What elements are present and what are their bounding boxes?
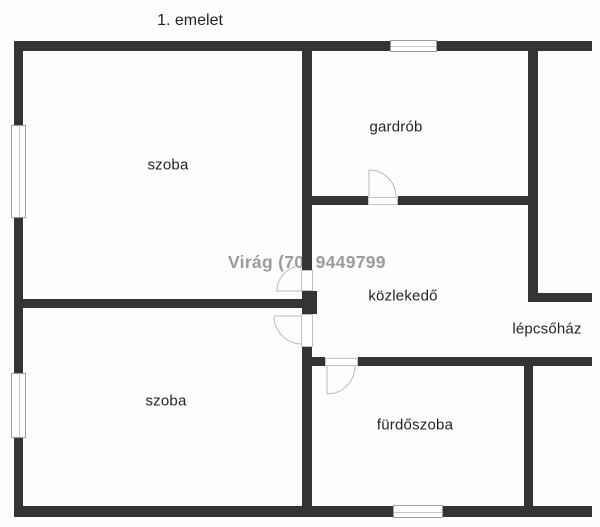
room-label-szoba-lower: szoba: [145, 393, 186, 410]
window-pane: [19, 126, 20, 217]
window-pane: [391, 46, 436, 47]
room-label-gardrob: gardrób: [369, 119, 422, 136]
floor-plan: 1. emelet Virág (70) 9449799 szoba gardr…: [0, 0, 600, 527]
window-left-lower: [11, 373, 26, 438]
door-opening-szoba-lower: [301, 314, 313, 347]
door-opening-furdoszoba: [325, 358, 358, 366]
window-pane: [394, 512, 442, 513]
door-arc-furdoszoba: [327, 366, 355, 394]
wall-left-middle: [14, 218, 23, 373]
door-arc-szoba-lower: [274, 316, 302, 344]
wall-center-upper: [302, 51, 312, 270]
room-label-kozlekedo: közlekedő: [368, 288, 437, 305]
window-bottom: [393, 505, 443, 518]
wall-bathroom-top-left: [312, 357, 325, 366]
wall-bathroom-top-right: [358, 357, 592, 366]
door-opening-gardrob: [368, 197, 398, 205]
wall-gardrob-right: [398, 196, 538, 205]
wall-bathroom-right: [524, 366, 533, 506]
wall-szoba-divider: [23, 299, 302, 308]
wall-center-lower: [302, 347, 312, 506]
wall-stairwell-vertical: [528, 51, 538, 302]
door-arc-gardrob: [369, 170, 396, 197]
room-label-szoba-upper: szoba: [147, 157, 188, 174]
wall-bottom-left: [14, 506, 393, 517]
wall-center-block: [302, 291, 317, 314]
wall-bottom-right: [443, 506, 592, 517]
window-pane: [19, 374, 20, 437]
floor-title: 1. emelet: [157, 12, 223, 30]
wall-top: [14, 41, 592, 51]
door-opening-szoba-upper: [301, 270, 313, 291]
room-label-furdoszoba: fürdőszoba: [377, 417, 453, 434]
window-left-upper: [11, 125, 26, 218]
wall-stairwell-top: [528, 293, 592, 302]
room-label-lepcsohaz: lépcsőház: [512, 321, 581, 338]
wall-gardrob-left: [312, 196, 368, 205]
wall-left-upper: [14, 41, 23, 125]
window-top: [390, 40, 437, 52]
